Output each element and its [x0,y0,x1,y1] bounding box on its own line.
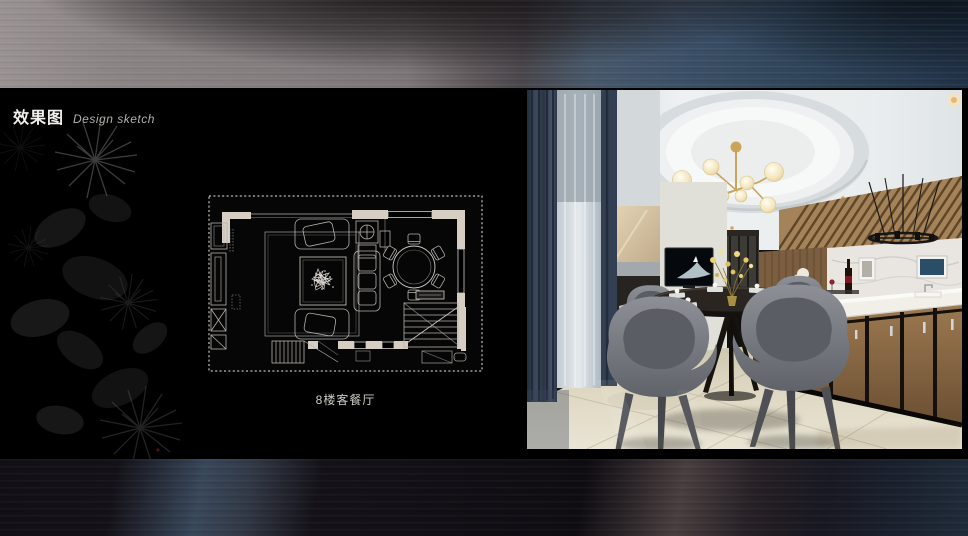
design-sketch-slide: 效果图Design sketch [0,0,968,536]
title-english: Design sketch [73,112,155,126]
page-title: 效果图Design sketch [13,104,155,128]
floor-plan-caption: 8楼客餐厅 [208,391,483,408]
flower-artwork [0,88,200,459]
interior-render-photo [527,90,962,449]
bottom-banner-image [0,459,968,536]
top-banner-image [0,0,968,88]
title-chinese: 效果图 [13,110,64,127]
floor-plan-drawing [208,195,483,372]
main-panel: 效果图Design sketch [0,88,968,459]
